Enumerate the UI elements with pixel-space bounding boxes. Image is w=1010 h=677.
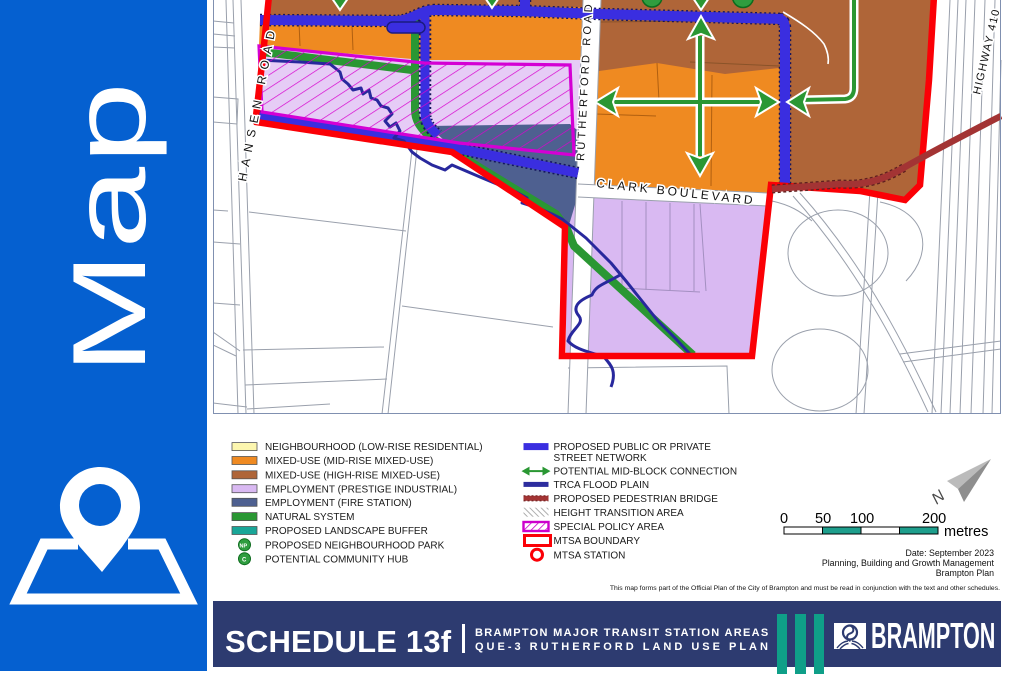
svg-text:metres: metres — [944, 524, 988, 540]
svg-text:0: 0 — [780, 511, 788, 527]
svg-text:POTENTIAL COMMUNITY HUB: POTENTIAL COMMUNITY HUB — [265, 554, 409, 565]
svg-text:NP: NP — [240, 544, 248, 550]
svg-text:EMPLOYMENT (PRESTIGE INDUSTRIA: EMPLOYMENT (PRESTIGE INDUSTRIAL) — [265, 484, 457, 495]
svg-text:EMPLOYMENT (FIRE STATION): EMPLOYMENT (FIRE STATION) — [265, 498, 412, 509]
svg-text:NATURAL SYSTEM: NATURAL SYSTEM — [265, 512, 354, 523]
svg-text:PROPOSED PUBLIC OR PRIVATE: PROPOSED PUBLIC OR PRIVATE — [554, 442, 712, 453]
svg-text:MIXED-USE (HIGH-RISE MIXED-USE: MIXED-USE (HIGH-RISE MIXED-USE) — [265, 470, 440, 481]
svg-text:TRCA FLOOD PLAIN: TRCA FLOOD PLAIN — [554, 480, 650, 491]
svg-text:100: 100 — [850, 511, 874, 527]
svg-text:200: 200 — [922, 511, 946, 527]
svg-text:50: 50 — [815, 511, 831, 527]
svg-text:NEIGHBOURHOOD (LOW-RISE RESIDE: NEIGHBOURHOOD (LOW-RISE RESIDENTIAL) — [265, 442, 483, 453]
svg-text:PROPOSED LANDSCAPE BUFFER: PROPOSED LANDSCAPE BUFFER — [265, 526, 428, 537]
svg-text:N: N — [929, 487, 949, 508]
svg-text:SPECIAL POLICY AREA: SPECIAL POLICY AREA — [554, 522, 665, 533]
svg-text:PROPOSED PEDESTRIAN BRIDGE: PROPOSED PEDESTRIAN BRIDGE — [554, 494, 719, 505]
svg-text:POTENTIAL MID-BLOCK CONNECTION: POTENTIAL MID-BLOCK CONNECTION — [554, 467, 738, 478]
svg-text:MIXED-USE (MID-RISE MIXED-USE): MIXED-USE (MID-RISE MIXED-USE) — [265, 456, 433, 467]
svg-text:STREET NETWORK: STREET NETWORK — [554, 453, 647, 464]
svg-text:C: C — [242, 558, 247, 564]
svg-text:PROPOSED NEIGHBOURHOOD PARK: PROPOSED NEIGHBOURHOOD PARK — [265, 540, 445, 551]
svg-text:HEIGHT TRANSITION AREA: HEIGHT TRANSITION AREA — [554, 508, 685, 519]
svg-text:MTSA BOUNDARY: MTSA BOUNDARY — [554, 536, 641, 547]
